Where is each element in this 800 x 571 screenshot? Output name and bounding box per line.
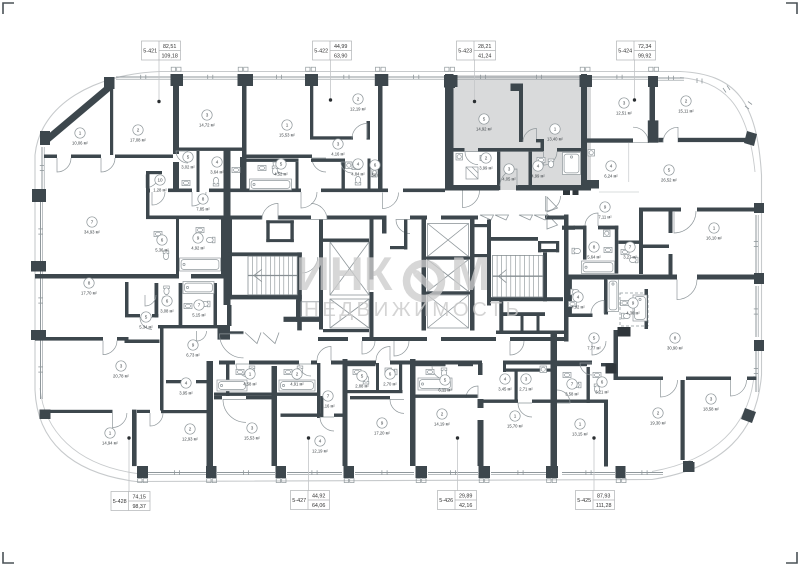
svg-text:19,30 м²: 19,30 м² — [650, 421, 667, 426]
svg-text:14,94 м²: 14,94 м² — [102, 441, 119, 446]
svg-text:2: 2 — [685, 99, 688, 104]
svg-text:1: 1 — [286, 123, 289, 128]
svg-text:3: 3 — [337, 142, 340, 147]
svg-text:1: 1 — [79, 131, 82, 136]
svg-text:7: 7 — [198, 303, 201, 308]
svg-text:13,40 м²: 13,40 м² — [547, 137, 564, 142]
svg-text:14,92 м²: 14,92 м² — [476, 127, 493, 132]
svg-text:12,51 м²: 12,51 м² — [616, 111, 633, 116]
svg-text:4: 4 — [185, 381, 188, 386]
svg-text:3,95 м²: 3,95 м² — [179, 391, 193, 396]
svg-text:4: 4 — [504, 377, 507, 382]
svg-text:5-422: 5-422 — [314, 49, 328, 55]
svg-text:3: 3 — [623, 101, 626, 106]
svg-text:44,92: 44,92 — [312, 494, 326, 500]
svg-text:2: 2 — [441, 412, 444, 417]
svg-text:15,53 м²: 15,53 м² — [244, 436, 261, 441]
svg-text:6,24 м²: 6,24 м² — [604, 174, 618, 179]
svg-text:111,28: 111,28 — [596, 503, 612, 509]
svg-text:5-426: 5-426 — [439, 498, 453, 504]
svg-text:6: 6 — [389, 372, 392, 377]
svg-text:5: 5 — [668, 168, 671, 173]
svg-text:2: 2 — [137, 128, 140, 133]
svg-text:99,92: 99,92 — [638, 54, 652, 60]
svg-text:3,02 м²: 3,02 м² — [181, 165, 195, 170]
svg-text:5: 5 — [361, 374, 364, 379]
svg-text:29,89: 29,89 — [459, 494, 473, 500]
svg-text:1,28 м²: 1,28 м² — [153, 188, 167, 193]
svg-text:5-423: 5-423 — [458, 49, 472, 55]
svg-text:5-427: 5-427 — [292, 498, 306, 504]
svg-text:12,19 м²: 12,19 м² — [312, 449, 329, 454]
svg-text:6: 6 — [601, 380, 604, 385]
svg-text:4,58 м²: 4,58 м² — [243, 382, 257, 387]
svg-text:2,71 м²: 2,71 м² — [519, 387, 533, 392]
svg-text:12,19 м²: 12,19 м² — [350, 107, 367, 112]
svg-text:82,51: 82,51 — [163, 44, 177, 50]
svg-text:9: 9 — [632, 301, 635, 306]
svg-text:4,16 м²: 4,16 м² — [321, 404, 335, 409]
svg-text:6: 6 — [161, 238, 164, 243]
svg-text:3,27 м²: 3,27 м² — [623, 255, 637, 260]
svg-text:2,88 м²: 2,88 м² — [355, 384, 369, 389]
svg-text:6: 6 — [166, 299, 169, 304]
svg-text:3,08 м²: 3,08 м² — [160, 309, 174, 314]
svg-text:4,05 м²: 4,05 м² — [502, 177, 516, 182]
svg-text:64,06: 64,06 — [312, 503, 326, 509]
svg-text:4,91 м²: 4,91 м² — [290, 382, 304, 387]
svg-text:1: 1 — [554, 127, 557, 132]
svg-text:2: 2 — [296, 372, 299, 377]
svg-text:5: 5 — [483, 117, 486, 122]
svg-text:6: 6 — [374, 163, 377, 168]
svg-text:3,58 м²: 3,58 м² — [565, 392, 579, 397]
svg-text:2,70 м²: 2,70 м² — [383, 382, 397, 387]
svg-text:18,58 м²: 18,58 м² — [703, 407, 720, 412]
svg-text:3: 3 — [710, 397, 713, 402]
svg-text:4: 4 — [577, 295, 580, 300]
svg-text:4,16 м²: 4,16 м² — [331, 152, 345, 157]
svg-text:3,99 м²: 3,99 м² — [479, 166, 493, 171]
svg-text:10: 10 — [157, 178, 163, 183]
svg-text:5-425: 5-425 — [577, 498, 591, 504]
svg-text:1: 1 — [713, 226, 716, 231]
svg-text:9: 9 — [197, 236, 200, 241]
svg-text:9: 9 — [381, 421, 384, 426]
svg-text:4,30 м²: 4,30 м² — [626, 311, 640, 316]
svg-text:28,21: 28,21 — [478, 44, 492, 50]
svg-text:72,34: 72,34 — [638, 44, 652, 50]
svg-text:7,77 м²: 7,77 м² — [587, 346, 601, 351]
svg-text:7: 7 — [629, 245, 632, 250]
svg-text:42,16: 42,16 — [459, 503, 473, 509]
svg-text:3: 3 — [508, 167, 511, 172]
svg-text:14,72 м²: 14,72 м² — [199, 123, 216, 128]
svg-text:5,36 м²: 5,36 м² — [155, 248, 169, 253]
svg-text:1: 1 — [514, 414, 517, 419]
svg-text:16,10 м²: 16,10 м² — [706, 236, 723, 241]
svg-text:9: 9 — [192, 343, 195, 348]
svg-text:44,99: 44,99 — [334, 44, 348, 50]
svg-text:4: 4 — [537, 164, 540, 169]
svg-text:8: 8 — [674, 336, 677, 341]
svg-text:5: 5 — [593, 336, 596, 341]
svg-text:3: 3 — [120, 364, 123, 369]
svg-text:30,90 м²: 30,90 м² — [667, 346, 684, 351]
svg-text:9: 9 — [604, 205, 607, 210]
svg-text:7,11 м²: 7,11 м² — [598, 215, 612, 220]
svg-text:4,84 м²: 4,84 м² — [351, 172, 365, 177]
svg-text:15,53 м²: 15,53 м² — [279, 133, 296, 138]
svg-text:3: 3 — [525, 377, 528, 382]
svg-text:74,15: 74,15 — [132, 495, 146, 501]
svg-text:4: 4 — [610, 164, 613, 169]
svg-text:15,11 м²: 15,11 м² — [678, 109, 694, 114]
svg-text:20,78 м²: 20,78 м² — [113, 374, 130, 379]
svg-text:8: 8 — [88, 281, 91, 286]
svg-text:98,37: 98,37 — [132, 504, 146, 510]
svg-text:5: 5 — [187, 155, 190, 160]
svg-text:109,18: 109,18 — [161, 54, 178, 60]
svg-text:5,15 м²: 5,15 м² — [192, 313, 206, 318]
svg-text:17,20 м²: 17,20 м² — [374, 431, 391, 436]
svg-text:34,93 м²: 34,93 м² — [84, 230, 101, 235]
svg-text:5-424: 5-424 — [618, 49, 632, 55]
svg-text:2: 2 — [657, 411, 660, 416]
svg-text:41,24: 41,24 — [478, 54, 492, 60]
svg-text:3,21 м²: 3,21 м² — [595, 390, 609, 395]
svg-text:5: 5 — [145, 315, 148, 320]
svg-text:2: 2 — [485, 156, 488, 161]
svg-text:12,93 м²: 12,93 м² — [182, 437, 199, 442]
svg-text:17,08 м²: 17,08 м² — [130, 138, 147, 143]
svg-text:М: М — [451, 247, 490, 300]
svg-text:4: 4 — [216, 160, 219, 165]
svg-text:1: 1 — [109, 431, 112, 436]
svg-text:7: 7 — [91, 220, 94, 225]
svg-text:8: 8 — [202, 197, 205, 202]
svg-text:1: 1 — [579, 422, 582, 427]
svg-text:2,58 м²: 2,58 м² — [368, 173, 382, 178]
svg-text:4,99 м²: 4,99 м² — [531, 174, 545, 179]
svg-text:4: 4 — [319, 439, 322, 444]
svg-text:6,73 м²: 6,73 м² — [186, 353, 200, 358]
svg-text:ИНК: ИНК — [296, 247, 393, 300]
svg-text:17,70 м²: 17,70 м² — [81, 291, 98, 296]
svg-text:63,90: 63,90 — [334, 54, 348, 60]
svg-text:15,70 м²: 15,70 м² — [507, 424, 524, 429]
svg-text:3: 3 — [251, 426, 254, 431]
svg-text:7: 7 — [327, 394, 330, 399]
svg-text:7: 7 — [571, 382, 574, 387]
svg-text:1: 1 — [249, 372, 252, 377]
svg-text:10,06 м²: 10,06 м² — [72, 141, 89, 146]
svg-text:7,85 м²: 7,85 м² — [196, 207, 210, 212]
svg-text:3,45 м²: 3,45 м² — [498, 387, 512, 392]
svg-text:13,15 м²: 13,15 м² — [572, 432, 589, 437]
svg-text:4,52 м²: 4,52 м² — [274, 172, 288, 177]
svg-text:26,52 м²: 26,52 м² — [661, 178, 678, 183]
svg-text:НЕДВИЖИМОСТЬ: НЕДВИЖИМОСТЬ — [304, 298, 522, 321]
svg-text:2: 2 — [357, 97, 360, 102]
svg-text:3: 3 — [206, 113, 209, 118]
svg-text:5: 5 — [444, 378, 447, 383]
svg-text:4,92 м²: 4,92 м² — [191, 246, 205, 251]
svg-text:8: 8 — [593, 245, 596, 250]
svg-text:2: 2 — [189, 427, 192, 432]
svg-text:5,34 м²: 5,34 м² — [139, 325, 153, 330]
svg-text:5: 5 — [280, 162, 283, 167]
svg-text:5-421: 5-421 — [143, 49, 157, 55]
svg-text:87,93: 87,93 — [597, 494, 611, 500]
svg-text:5-428: 5-428 — [113, 499, 127, 505]
svg-text:14,19 м²: 14,19 м² — [434, 422, 451, 427]
svg-text:5,64 м²: 5,64 м² — [587, 255, 601, 260]
svg-text:4,92 м²: 4,92 м² — [571, 305, 585, 310]
svg-text:4: 4 — [357, 162, 360, 167]
svg-text:6,11 м²: 6,11 м² — [438, 388, 452, 393]
svg-text:3,64 м²: 3,64 м² — [210, 170, 224, 175]
